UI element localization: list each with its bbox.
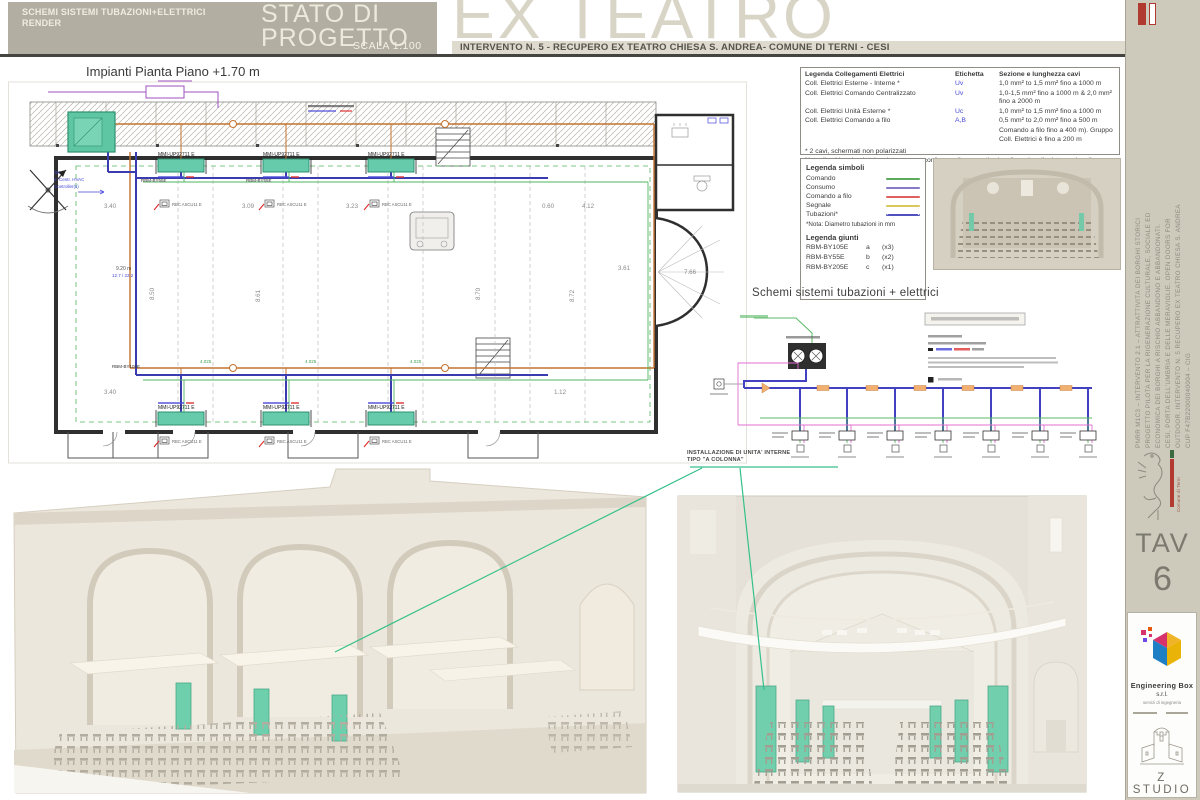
svg-text:4.025: 4.025 xyxy=(410,359,422,364)
svg-text:RBC ASCU11 E: RBC ASCU11 E xyxy=(382,439,412,444)
svg-text:4.025: 4.025 xyxy=(200,359,212,364)
simboli-label: Comando xyxy=(806,175,835,182)
svg-text:RBC ASCU11 E: RBC ASCU11 E xyxy=(172,439,202,444)
svg-text:RBC ASCU11 E: RBC ASCU11 E xyxy=(382,202,412,207)
svg-text:MMI-UP92711 E: MMI-UP92711 E xyxy=(263,405,300,411)
simboli-swatch xyxy=(886,205,920,207)
firm-suffix: s.r.l. xyxy=(1127,691,1197,698)
schematic-green-line xyxy=(754,318,812,343)
svg-text:MMI-UP92711 E: MMI-UP92711 E xyxy=(158,152,195,158)
giunti-model: RBM-BY205E xyxy=(806,264,866,273)
cavi-row-tag: Uv xyxy=(955,80,997,88)
sheet-title: EX TEATRO xyxy=(452,0,1124,44)
giunti-key: a xyxy=(866,244,882,253)
simboli-title: Legenda simboli xyxy=(806,163,920,172)
svg-text:8.61: 8.61 xyxy=(255,289,262,302)
simboli-label: Consumo xyxy=(806,184,835,191)
legend-simboli: Legenda simboli Comando Consumo Comando … xyxy=(800,158,926,300)
firm-name: Engineering Box xyxy=(1127,681,1197,690)
svg-text:4.025: 4.025 xyxy=(305,359,317,364)
cavi-footnote1: * 2 cavi, schermati non polarizzati xyxy=(805,148,1115,157)
svg-text:3.61: 3.61 xyxy=(618,265,631,272)
svg-text:12.7 / 22.2: 12.7 / 22.2 xyxy=(112,273,134,278)
sheet-title-wrap: EX TEATRO xyxy=(452,0,1124,44)
svg-text:4.12: 4.12 xyxy=(582,203,595,210)
schematic-title: Schemi sistemi tubazioni + elettrici xyxy=(752,287,939,299)
chair-rows-right xyxy=(892,722,1010,784)
svg-text:Controller(s): Controller(s) xyxy=(54,184,79,189)
svg-text:RBC ASCU11 E: RBC ASCU11 E xyxy=(277,439,307,444)
giunti-key: b xyxy=(866,254,882,263)
svg-text:MMI-UP92711 E: MMI-UP92711 E xyxy=(368,152,405,158)
legend-cavi-col1: Legenda Collegamenti Elettrici xyxy=(805,71,953,79)
firm-contact-line xyxy=(1133,712,1157,714)
tav-label: TAV xyxy=(1125,528,1200,559)
schematic-remote-controller xyxy=(710,379,744,395)
svg-text:RBM-BY105E: RBM-BY105E xyxy=(112,364,140,369)
svg-text:MMI-UP92711 E: MMI-UP92711 E xyxy=(368,405,405,411)
giunti-model: RBM-BY105E xyxy=(806,244,866,253)
simboli-swatch xyxy=(886,214,920,216)
cavi-row-spec: 1,0 mm² to 1,5 mm² fino a 1000 m xyxy=(999,80,1115,88)
comune-bar-red xyxy=(1170,459,1174,507)
chair-rows-left xyxy=(754,722,872,784)
discipline-line1: SCHEMI SISTEMI TUBAZIONI+ELETTRICI xyxy=(22,7,206,18)
giunti-key: c xyxy=(866,264,882,273)
legend-cavi: Legenda Collegamenti Elettrici Etichetta… xyxy=(800,67,1120,155)
svg-text:RBM-BY55E: RBM-BY55E xyxy=(246,178,272,183)
corner-flag-outline xyxy=(1149,3,1156,25)
cavi-row-label: Coll. Elettrici Comando Centralizzato xyxy=(805,90,953,107)
header-block: SCHEMI SISTEMI TUBAZIONI+ELETTRICI RENDE… xyxy=(8,2,437,54)
svg-text:0.60: 0.60 xyxy=(542,203,555,210)
simboli-label: Comando a filo xyxy=(806,193,852,200)
simboli-label: Segnale xyxy=(806,202,831,209)
comune-bar-green xyxy=(1170,450,1174,458)
giunti-qty: (x2) xyxy=(882,254,920,263)
legend-cavi-col3: Sezione e lunghezza cavi xyxy=(999,71,1115,79)
equipment-symbol xyxy=(410,212,454,250)
project-description-vertical: PNRR M1C3 – INTERVENTO 2.1 – ATTRATTIVIT… xyxy=(1127,60,1199,448)
svg-text:9.20 m: 9.20 m xyxy=(116,266,131,272)
column-units-annotation: INSTALLAZIONE DI UNITA' INTERNE TIPO "A … xyxy=(687,450,790,463)
scale-label: SCALA 1:100 xyxy=(353,40,422,52)
svg-text:3.40: 3.40 xyxy=(104,203,117,210)
cavi-row-label: Coll. Elettrici Comando a filo xyxy=(805,117,953,125)
interior-3d-render xyxy=(672,490,1092,798)
cavi-extra1: Comando a filo fino a 400 m). Gruppo xyxy=(999,127,1115,135)
comune-label: Comune di Terni xyxy=(1176,450,1181,512)
corner-flag-red xyxy=(1138,3,1146,25)
svg-text:8.72: 8.72 xyxy=(569,289,576,302)
castle-sketch-icon xyxy=(1136,722,1188,770)
stairs-top xyxy=(436,128,470,166)
plan-title: Impianti Pianta Piano +1.70 m xyxy=(86,64,260,79)
simboli-note: *Nota: Diametro tubazioni in mm xyxy=(806,221,920,228)
simboli-label: Tubazioni* xyxy=(806,211,838,218)
svg-text:MMI-UP92711 E: MMI-UP92711 E xyxy=(263,152,300,158)
giunti-qty: (x3) xyxy=(882,244,920,253)
floor-plan: Impianti Pianta Piano +1.70 m xyxy=(8,60,748,465)
firm-contact-line xyxy=(1166,712,1188,714)
discipline-text: SCHEMI SISTEMI TUBAZIONI+ELETTRICI RENDE… xyxy=(22,7,206,30)
cavi-row-tag: Uv xyxy=(955,90,997,107)
simboli-swatch xyxy=(886,178,920,180)
stairs-bottom xyxy=(476,338,510,378)
svg-text:8.70: 8.70 xyxy=(475,287,482,300)
schematic-indoor-units xyxy=(772,431,1097,458)
subtitle-text: INTERVENTO N. 5 - RECUPERO EX TEATRO CHI… xyxy=(452,41,1125,54)
svg-text:1.12: 1.12 xyxy=(554,389,567,396)
interior-render-thumbnail xyxy=(933,158,1121,270)
svg-text:MMI-UP92711 E: MMI-UP92711 E xyxy=(158,405,195,411)
section-3d-cutaway xyxy=(0,455,660,800)
firm-tagline: servizi di ingegneria xyxy=(1127,700,1197,705)
cavi-row-tag: A,B xyxy=(955,117,997,125)
subtitle-band: INTERVENTO N. 5 - RECUPERO EX TEATRO CHI… xyxy=(452,41,1125,54)
outdoor-unit xyxy=(68,112,115,152)
svg-text:8.50: 8.50 xyxy=(149,287,156,300)
simboli-swatch xyxy=(886,196,920,198)
giunti-title: Legenda giunti xyxy=(806,233,920,242)
svg-text:RBM-BY55E: RBM-BY55E xyxy=(141,178,167,183)
svg-text:RBC ASCU11 E: RBC ASCU11 E xyxy=(277,202,307,207)
svg-text:3.09: 3.09 xyxy=(242,203,255,210)
svg-text:7.66: 7.66 xyxy=(684,269,697,276)
simboli-swatch xyxy=(886,187,920,189)
terni-dragon-emblem-icon xyxy=(1136,448,1170,526)
schematic-outdoor-unit xyxy=(786,336,826,369)
giunti-model: RBM-BY55E xyxy=(806,254,866,263)
side-rooms xyxy=(656,115,733,210)
svg-text:3.40: 3.40 xyxy=(104,389,117,396)
svg-text:3.23: 3.23 xyxy=(346,203,359,210)
cavi-row-label: Coll. Elettrici Esterne - Interne * xyxy=(805,80,953,88)
giunti-qty: (x1) xyxy=(882,264,920,273)
cavi-row-spec: 0,5 mm² to 2,0 mm² fino a 500 m xyxy=(999,117,1115,125)
column-unit-teal xyxy=(176,683,191,729)
engineering-box-logo-icon xyxy=(1139,624,1185,678)
svg-text:RBC ASCU11 E: RBC ASCU11 E xyxy=(172,202,202,207)
cavi-row-spec: 1,0 mm² to 1,5 mm² fino a 1000 m xyxy=(999,108,1115,116)
piping-wiring-schematic xyxy=(700,305,1125,460)
drawing-sheet: SCHEMI SISTEMI TUBAZIONI+ELETTRICI RENDE… xyxy=(0,0,1200,800)
tav-number: 6 xyxy=(1125,560,1200,599)
cavi-row-tag: Uc xyxy=(955,108,997,116)
cavi-extra2: Coll. Elettrici è fino a 200 m xyxy=(999,136,1115,144)
schematic-notes xyxy=(925,313,1058,383)
discipline-line2: RENDER xyxy=(22,18,206,29)
studio-logo-text: Z STUDIO xyxy=(1127,772,1197,796)
cavi-row-spec: 1,0-1,5 mm² fino a 1000 m & 2,0 mm² fino… xyxy=(999,90,1115,107)
header-rule xyxy=(0,54,1125,57)
legend-cavi-col2: Etichetta xyxy=(955,71,997,79)
cavi-row-label: Coll. Elettrici Unità Esterne * xyxy=(805,108,953,116)
